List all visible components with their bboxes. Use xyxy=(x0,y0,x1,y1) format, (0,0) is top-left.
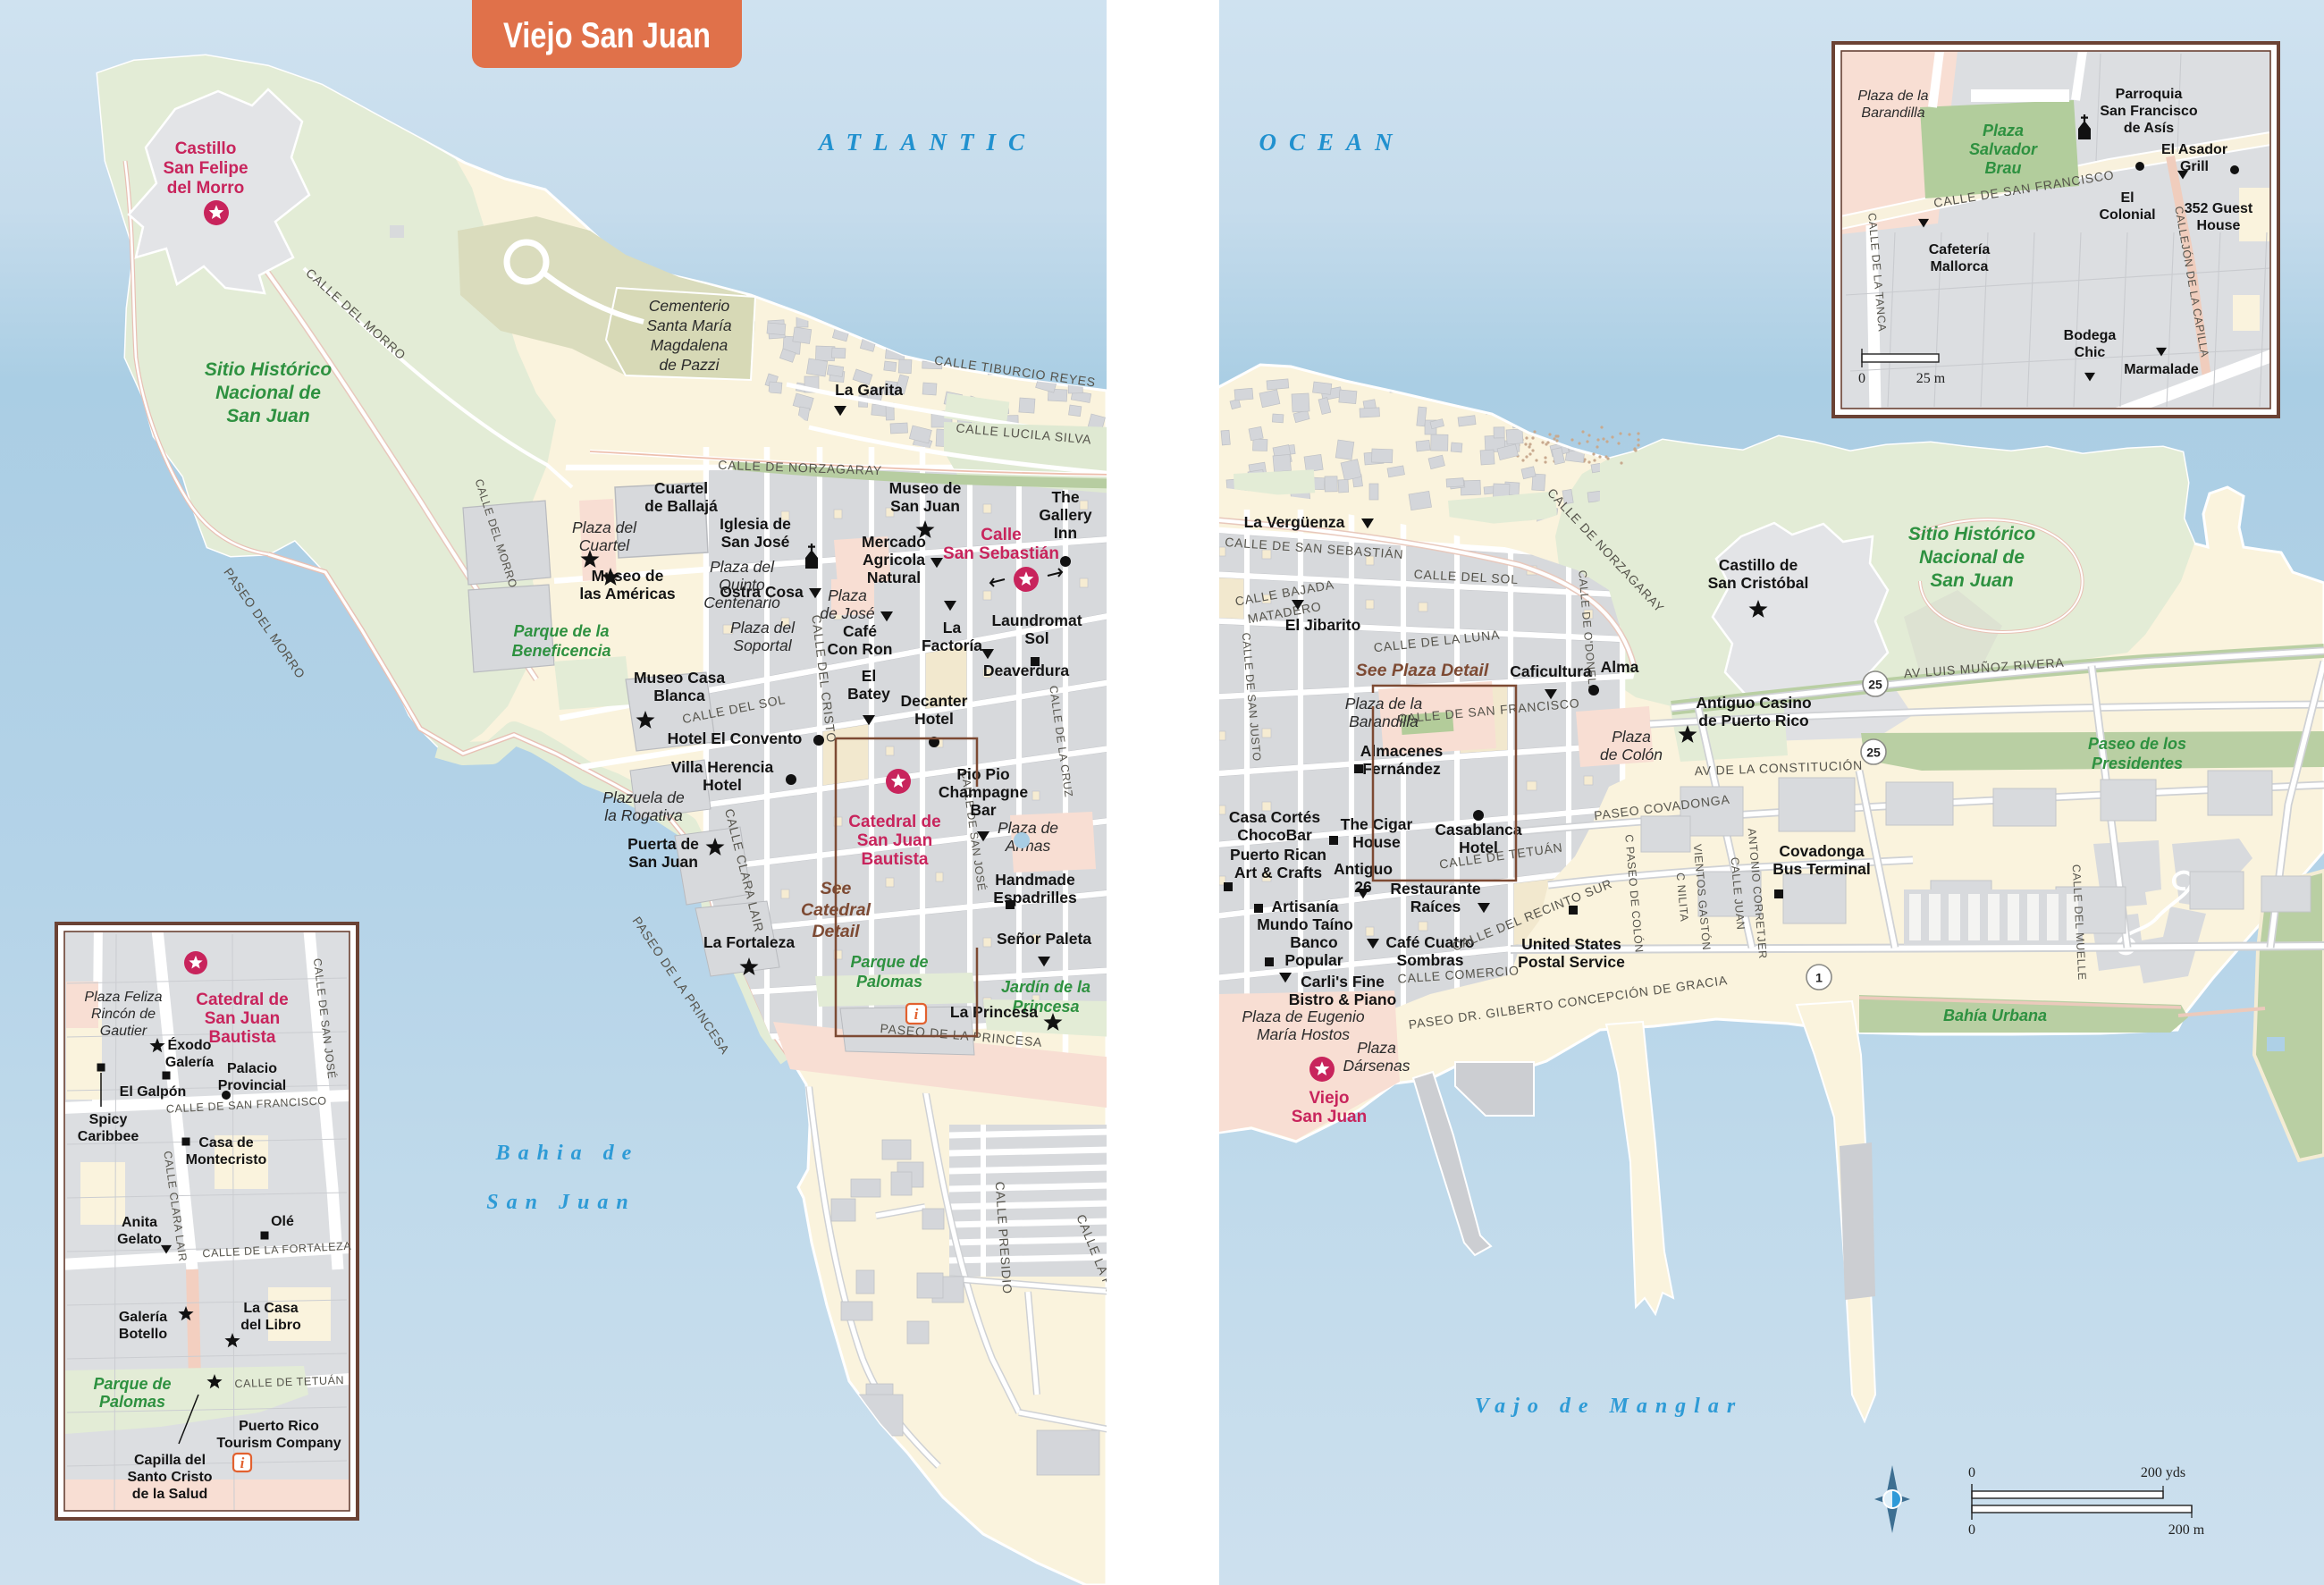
svg-text:Plaza delCuartel: Plaza delCuartel xyxy=(572,518,637,554)
svg-text:CovadongaBus Terminal: CovadongaBus Terminal xyxy=(1772,842,1871,878)
svg-text:Hotel El Convento: Hotel El Convento xyxy=(668,729,803,747)
svg-text:Bahía Urbana: Bahía Urbana xyxy=(1943,1007,2047,1024)
svg-text:Alma: Alma xyxy=(1601,658,1639,676)
svg-text:Deaverdura: Deaverdura xyxy=(983,662,1070,679)
svg-text:Marmalade: Marmalade xyxy=(2124,362,2199,377)
svg-text:25 m: 25 m xyxy=(1916,371,1946,386)
svg-text:La Fortaleza: La Fortaleza xyxy=(703,933,795,951)
svg-text:La Garita: La Garita xyxy=(835,381,903,399)
svg-text:0: 0 xyxy=(1968,1522,1975,1538)
svg-text:i: i xyxy=(914,1006,919,1023)
svg-text:Museo delas Américas: Museo delas Américas xyxy=(579,567,676,603)
svg-text:Vajo de Manglar: Vajo de Manglar xyxy=(1475,1395,1743,1418)
svg-text:Viejo San Juan: Viejo San Juan xyxy=(503,16,711,55)
svg-text:Puerta deSan Juan: Puerta deSan Juan xyxy=(627,835,699,871)
svg-text:Castillo deSan Cristóbal: Castillo deSan Cristóbal xyxy=(1708,556,1809,592)
svg-text:0: 0 xyxy=(1858,371,1865,386)
svg-text:Catedral deSan JuanBautista: Catedral deSan JuanBautista xyxy=(848,813,940,869)
svg-text:Iglesia deSan José: Iglesia deSan José xyxy=(720,515,791,551)
svg-text:MercadoAgricolaNatural: MercadoAgricolaNatural xyxy=(862,533,926,586)
svg-text:La Vergüenza: La Vergüenza xyxy=(1244,513,1345,531)
svg-text:25: 25 xyxy=(1866,746,1881,760)
svg-text:0: 0 xyxy=(1968,1465,1975,1480)
svg-text:Plaza de EugenioMaría Hostos: Plaza de EugenioMaría Hostos xyxy=(1242,1007,1364,1043)
svg-text:i: i xyxy=(240,1454,245,1471)
svg-text:El Galpón: El Galpón xyxy=(120,1084,187,1100)
svg-text:BancoPopular: BancoPopular xyxy=(1284,933,1343,969)
svg-text:San Juan: San Juan xyxy=(486,1191,636,1214)
svg-text:200 yds: 200 yds xyxy=(2141,1465,2185,1480)
svg-text:Capilla delSanto Cristode la S: Capilla delSanto Cristode la Salud xyxy=(127,1453,212,1502)
svg-text:Plazade José: Plazade José xyxy=(820,586,875,622)
svg-text:Casa CortésChocoBar: Casa CortésChocoBar xyxy=(1229,808,1320,844)
svg-text:ATLANTIC: ATLANTIC xyxy=(817,129,1037,156)
svg-text:200 m: 200 m xyxy=(2168,1522,2205,1538)
svg-text:La Princesa: La Princesa xyxy=(950,1003,1039,1021)
svg-text:CastilloSan Felipedel Morro: CastilloSan Felipedel Morro xyxy=(163,139,248,198)
svg-text:Antiguo Casinode Puerto Rico: Antiguo Casinode Puerto Rico xyxy=(1696,694,1811,729)
svg-text:Carli's FineBistro & Piano: Carli's FineBistro & Piano xyxy=(1289,973,1397,1008)
svg-text:Puerto RicanArt & Crafts: Puerto RicanArt & Crafts xyxy=(1230,846,1326,881)
svg-text:United StatesPostal Service: United StatesPostal Service xyxy=(1518,935,1625,971)
svg-text:OCEAN: OCEAN xyxy=(1259,129,1404,156)
svg-text:See Plaza Detail: See Plaza Detail xyxy=(1356,661,1489,680)
svg-text:Bahia de: Bahia de xyxy=(495,1142,640,1165)
svg-text:Batey: Batey xyxy=(847,685,890,703)
svg-text:Plazuela dela Rogativa: Plazuela dela Rogativa xyxy=(602,788,685,824)
svg-text:Plaza delSoportal: Plaza delSoportal xyxy=(730,619,796,654)
svg-text:1: 1 xyxy=(1815,971,1823,985)
svg-text:Parque dePalomas: Parque dePalomas xyxy=(93,1375,171,1411)
svg-text:El: El xyxy=(862,667,877,685)
svg-text:Museo deSan Juan: Museo deSan Juan xyxy=(889,479,962,515)
svg-text:El Jibarito: El Jibarito xyxy=(1285,616,1361,634)
svg-text:Cuartelde Ballajá: Cuartelde Ballajá xyxy=(644,479,718,515)
svg-text:Olé: Olé xyxy=(271,1214,294,1229)
svg-text:25: 25 xyxy=(1868,678,1882,692)
svg-text:Caficultura: Caficultura xyxy=(1510,662,1592,680)
svg-text:Señor Paleta: Señor Paleta xyxy=(997,930,1091,948)
